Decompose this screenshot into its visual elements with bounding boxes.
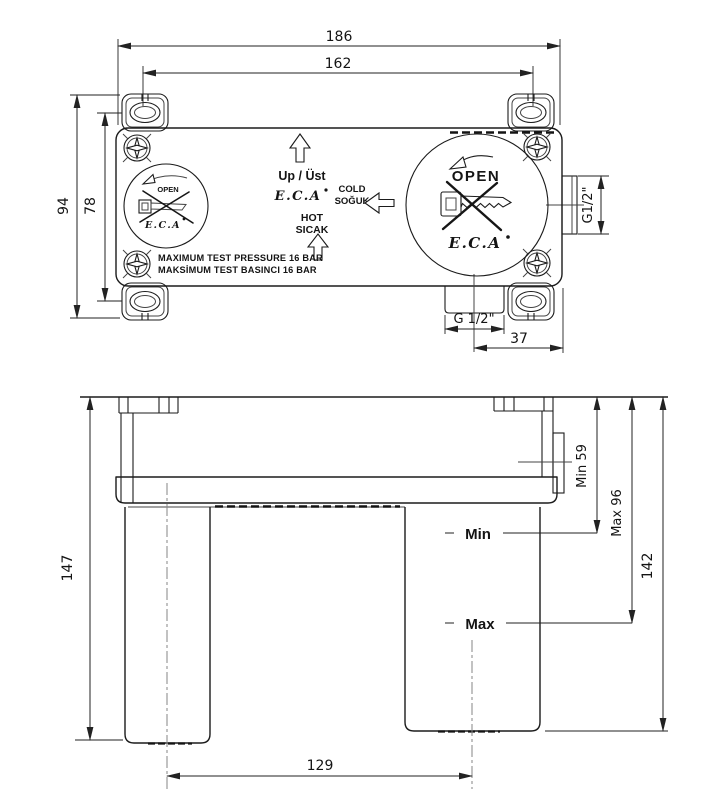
open-label-right: OPEN <box>452 168 501 185</box>
brand-dot-right <box>506 235 510 239</box>
dim-front-height: 147 <box>60 555 76 582</box>
mounting-tab-top-right <box>508 94 554 131</box>
technical-drawing: OPEN E.C.A OPEN E.C. <box>0 0 714 804</box>
dimension-129: 129 <box>167 758 472 776</box>
min-label: Min <box>465 526 491 543</box>
front-tab-right <box>494 397 553 477</box>
dim-side-outlet-thread: G1/2" <box>581 187 596 224</box>
dimension-g12-side: G1/2" <box>578 176 609 234</box>
hot-label-en: HOT <box>301 212 324 224</box>
mounting-tab-bottom-right <box>508 283 554 320</box>
screw-top-left <box>123 134 151 162</box>
dimension-147: 147 <box>60 397 123 740</box>
screw-bottom-left <box>123 250 151 278</box>
dimension-min-59: Min 59 <box>575 397 597 533</box>
dim-bottom-outlet-thread: G 1/2" <box>453 312 494 327</box>
cold-label-tr: SOĞUK <box>335 195 370 207</box>
cold-label-en: COLD <box>339 184 366 195</box>
up-arrow-icon <box>290 134 310 162</box>
pressure-note: MAXIMUM TEST PRESSURE 16 BAR MAKSİMUM TE… <box>158 253 323 275</box>
dim-slot-spacing: 162 <box>325 56 352 72</box>
dimension-max-96: Max 96 <box>610 397 632 623</box>
dim-overall-width: 186 <box>326 29 353 45</box>
dim-slot-height: 78 <box>83 197 99 215</box>
pressure-line-tr: MAKSİMUM TEST BASINCI 16 BAR <box>158 265 317 275</box>
side-outlet-fitting <box>546 176 584 234</box>
brand-logo-center: E.C.A <box>274 189 322 204</box>
mounting-tab-bottom-left <box>122 283 168 320</box>
dim-leg-spacing: 129 <box>307 758 334 774</box>
left-valve-circle: OPEN E.C.A <box>124 164 208 248</box>
brand-logo-left: E.C.A <box>144 220 181 231</box>
open-label-left: OPEN <box>157 185 178 194</box>
brand-logo-right: E.C.A <box>448 234 502 252</box>
front-body-plate <box>116 477 557 503</box>
front-side-outlet <box>518 433 572 493</box>
brand-dot-left <box>183 218 186 221</box>
dim-max-depth: Max 96 <box>610 489 625 537</box>
dim-overall-height: 94 <box>56 197 72 215</box>
dim-outlet-offset: 37 <box>510 331 528 347</box>
up-label: Up / Üst <box>278 168 326 183</box>
orientation-labels: Up / Üst E.C.A COLD SOĞUK HOT SICAK <box>274 134 394 260</box>
top-view: OPEN E.C.A OPEN E.C. <box>56 29 609 353</box>
dim-body-height: 142 <box>640 553 656 580</box>
dim-min-depth: Min 59 <box>575 444 590 488</box>
dimension-186: 186 <box>118 29 560 125</box>
screw-top-right <box>523 133 551 161</box>
screw-bottom-right <box>523 249 551 277</box>
mounting-tab-top-left <box>122 94 168 131</box>
drawing-canvas: OPEN E.C.A OPEN E.C. <box>0 0 714 804</box>
front-view: Min Max 147 Min 59 Max 96 142 129 <box>60 397 668 789</box>
min-leader: Min <box>445 526 597 543</box>
key-symbol-right <box>441 182 511 230</box>
max-leader: Max <box>445 616 632 633</box>
hot-label-tr: SICAK <box>296 224 329 236</box>
pressure-line-en: MAXIMUM TEST PRESSURE 16 BAR <box>158 253 323 263</box>
max-label: Max <box>465 616 495 633</box>
dimension-162: 162 <box>143 56 533 106</box>
front-tab-left <box>119 397 178 503</box>
brand-dot-center <box>324 188 327 191</box>
